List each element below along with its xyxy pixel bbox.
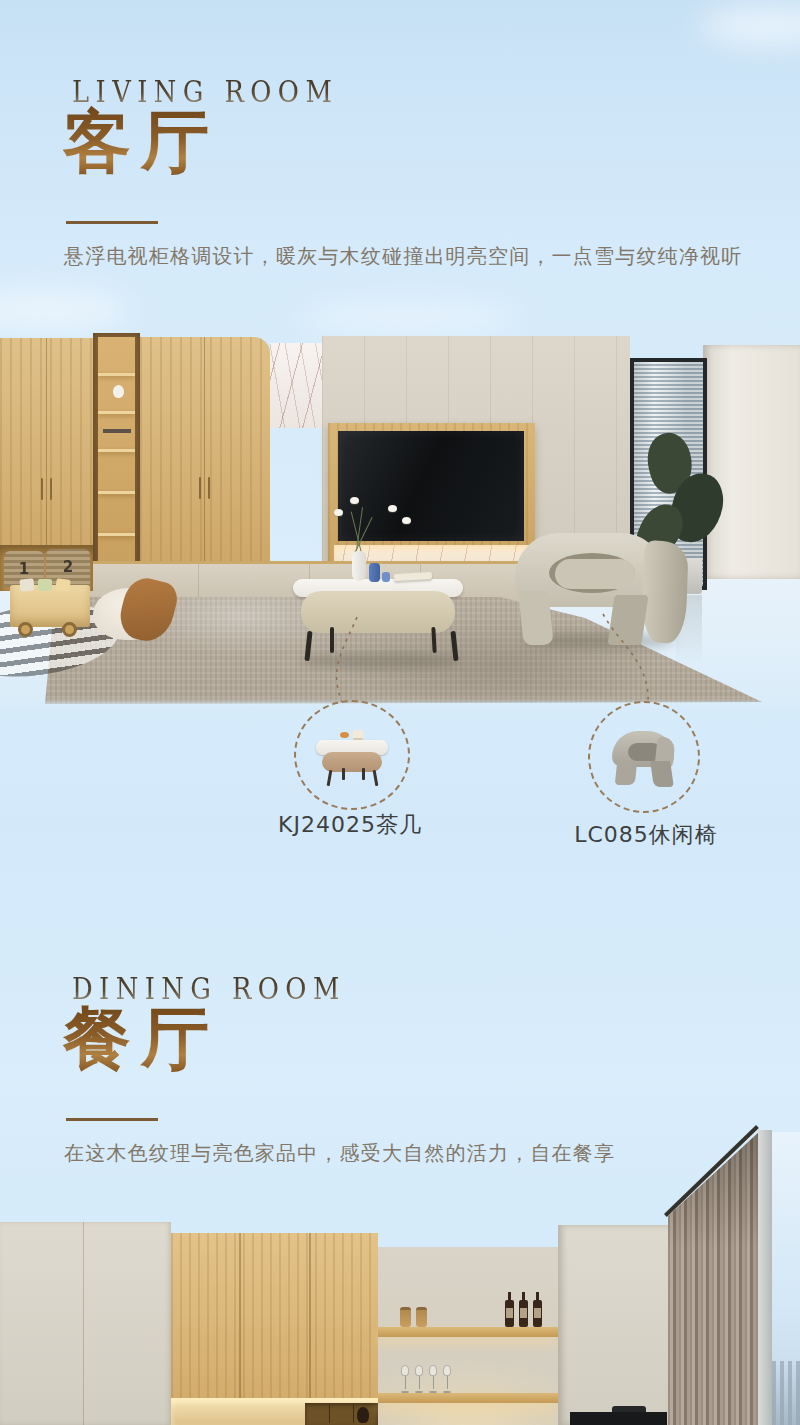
window-frame — [758, 1130, 772, 1425]
tv-stand-detail — [612, 1406, 646, 1412]
wine-glass — [442, 1365, 452, 1393]
white-flower — [334, 509, 343, 516]
blue-decor-cup — [382, 572, 390, 582]
tall-cabinet-right — [558, 1225, 670, 1425]
dark-vase — [357, 1407, 369, 1423]
blue-decor-bottle — [369, 563, 380, 582]
wood-shelf-lower — [378, 1393, 558, 1403]
white-flower — [388, 505, 397, 512]
glass-bowl — [415, 1365, 423, 1376]
glass-bowl — [429, 1365, 437, 1376]
white-flower — [402, 517, 411, 524]
mini-table-leg — [362, 768, 365, 780]
basket-number-label: 1 — [19, 560, 29, 578]
cart-wheel — [62, 622, 77, 637]
mini-table-leg — [373, 770, 379, 786]
shelf-board — [98, 411, 135, 414]
display-shelf-tower — [93, 333, 140, 590]
cubby-divider — [353, 1405, 354, 1423]
chair-left-leg — [518, 591, 554, 645]
mini-table-leg — [342, 768, 345, 780]
product-label-coffee-table[interactable]: KJ24025茶几 — [265, 810, 435, 840]
shelf-board — [98, 533, 135, 536]
wine-bottle — [519, 1300, 528, 1327]
door-seam — [204, 337, 205, 590]
mini-coffee-table-body — [322, 752, 382, 772]
cloud-decoration — [700, 6, 800, 46]
wood-cabinet — [171, 1233, 378, 1425]
living-room-description: 悬浮电视柜格调设计，暖灰与木纹碰撞出明亮空间，一点雪与纹纯净视听 — [64, 243, 742, 270]
title-underline — [66, 221, 158, 224]
shelf-board — [98, 373, 135, 376]
glass-stem — [447, 1376, 448, 1389]
bunny-figurine — [113, 385, 124, 398]
mini-croissant — [340, 732, 349, 738]
callout-coffee-table[interactable] — [294, 700, 410, 810]
wine-glass — [400, 1365, 410, 1393]
window-glass — [772, 1132, 800, 1425]
decor-jar — [416, 1307, 427, 1327]
display-niche — [378, 1247, 558, 1425]
table-shadow — [300, 653, 460, 669]
dining-room-photo — [0, 1128, 800, 1425]
wine-bottle — [505, 1300, 514, 1327]
toy-book — [38, 579, 52, 591]
living-room-title: 客厅 — [63, 104, 219, 179]
wood-shelf-upper — [378, 1327, 558, 1337]
wardrobe-right — [140, 337, 270, 590]
flower-vase — [352, 551, 366, 581]
furniture-promo-page: LIVING ROOM 客厅 悬浮电视柜格调设计，暖灰与木纹碰撞出明亮空间，一点… — [0, 0, 800, 1425]
toy-cart — [10, 585, 90, 627]
table-leg — [330, 627, 334, 653]
marble-accent-panel — [270, 343, 322, 428]
title-underline — [66, 1118, 158, 1121]
glass-bowl — [443, 1365, 451, 1376]
mini-table-leg — [327, 770, 333, 786]
shelf-books — [103, 429, 131, 433]
toy-book — [19, 578, 34, 591]
glass-stem — [419, 1376, 420, 1389]
cloud-decoration — [0, 288, 130, 332]
glass-stem — [433, 1376, 434, 1389]
door-handle — [199, 477, 201, 499]
shelf-board — [98, 491, 135, 494]
basket-number-label: 2 — [63, 558, 73, 576]
product-label-lounge-chair[interactable]: LC085休闲椅 — [561, 820, 731, 850]
white-flower — [350, 497, 359, 504]
right-wall — [703, 345, 800, 579]
glass-stem — [405, 1376, 406, 1389]
cubby-divider — [329, 1405, 330, 1423]
living-room-photo: 1 2 — [0, 333, 800, 710]
wine-bottle — [533, 1300, 542, 1327]
mini-chair-leg — [615, 761, 638, 785]
cart-wheel — [18, 622, 33, 637]
glass-bowl — [401, 1365, 409, 1376]
tv-screen — [338, 431, 524, 541]
cloud-decoration — [300, 300, 520, 336]
tall-cabinet-left — [0, 1222, 171, 1425]
door-handle — [41, 478, 43, 500]
door-handle — [208, 477, 210, 499]
toy-book — [55, 578, 70, 592]
decor-jar — [400, 1307, 411, 1327]
callout-lounge-chair[interactable] — [588, 701, 700, 813]
wine-cubby — [305, 1403, 378, 1425]
dining-tv-edge — [570, 1412, 667, 1425]
lounge-chair — [515, 533, 687, 651]
mini-cake — [353, 730, 363, 740]
chair-cushion — [555, 559, 635, 589]
cabinet-seam — [83, 1222, 84, 1425]
dining-room-title: 餐厅 — [63, 1001, 219, 1076]
chair-right-wing — [641, 540, 689, 643]
wine-glass — [414, 1365, 424, 1393]
curtain — [668, 1128, 760, 1425]
city-view — [772, 1361, 800, 1425]
wine-glass — [428, 1365, 438, 1393]
mini-chair-leg — [650, 761, 674, 787]
chair-front-leg — [607, 595, 648, 645]
shelf-board — [98, 449, 135, 452]
door-handle — [50, 478, 52, 500]
